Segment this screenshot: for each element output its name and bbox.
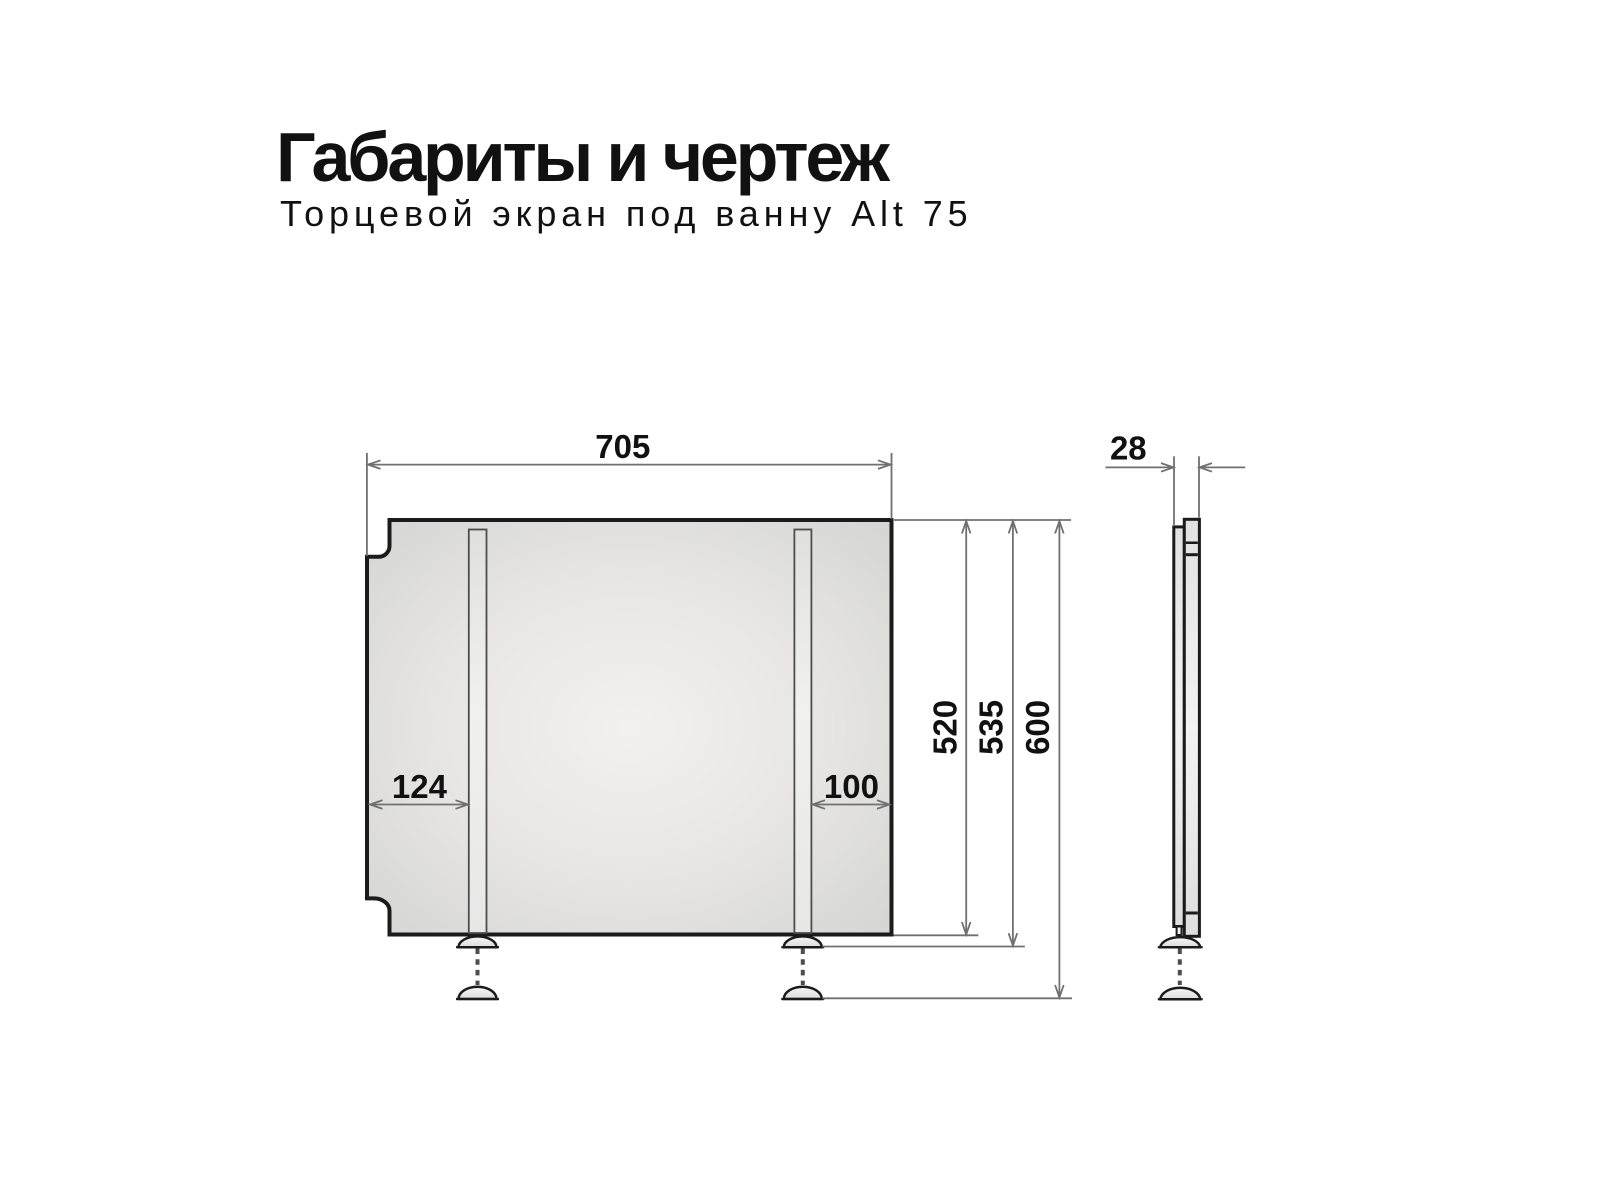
svg-text:600: 600 (1019, 700, 1056, 755)
svg-text:28: 28 (1110, 430, 1147, 467)
svg-text:Торцевой экран под ванну Alt 7: Торцевой экран под ванну Alt 75 (280, 193, 973, 234)
svg-text:705: 705 (595, 428, 650, 465)
svg-text:520: 520 (927, 700, 964, 755)
svg-text:124: 124 (392, 768, 448, 805)
svg-text:100: 100 (824, 768, 879, 805)
svg-text:535: 535 (973, 700, 1010, 755)
svg-text:Габариты и чертеж: Габариты и чертеж (276, 118, 891, 196)
